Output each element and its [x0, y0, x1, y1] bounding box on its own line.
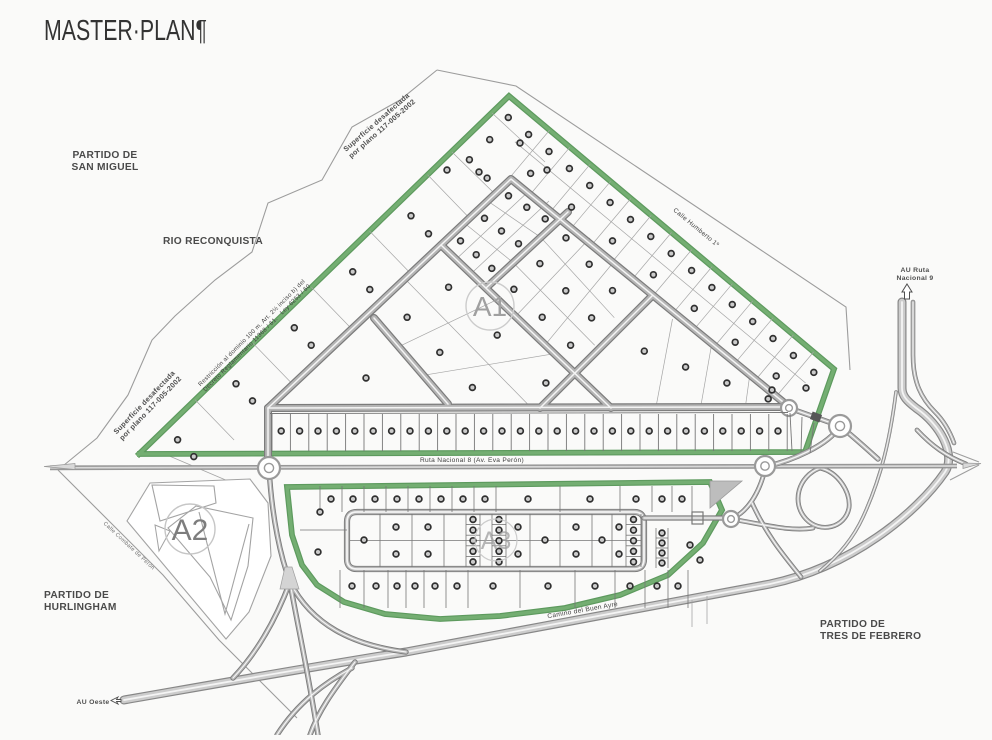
- svg-text:Ruta Nacional 8 (Av. Eva Perón: Ruta Nacional 8 (Av. Eva Perón): [420, 457, 524, 464]
- svg-text:AU Oeste: AU Oeste: [77, 699, 110, 706]
- svg-text:RIO RECONQUISTA: RIO RECONQUISTA: [163, 236, 263, 247]
- svg-text:AU RutaNacional 9: AU RutaNacional 9: [897, 267, 934, 282]
- svg-text:PARTIDO DEHURLINGHAM: PARTIDO DEHURLINGHAM: [44, 590, 117, 613]
- svg-text:PARTIDO DESAN MIGUEL: PARTIDO DESAN MIGUEL: [72, 150, 139, 173]
- svg-text:A2: A2: [172, 514, 209, 547]
- svg-text:A3: A3: [481, 527, 512, 555]
- svg-text:MASTER·PLAN¶: MASTER·PLAN¶: [44, 15, 207, 47]
- svg-text:A1: A1: [473, 291, 507, 322]
